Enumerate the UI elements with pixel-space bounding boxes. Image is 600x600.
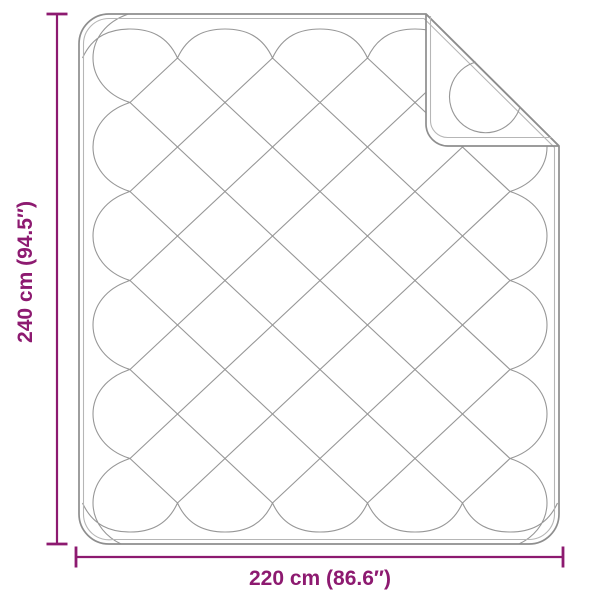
width-dimension: 220 cm (86.6″): [76, 547, 563, 591]
fold-crease-line: [426, 14, 559, 146]
folded-corner-flap: [426, 14, 559, 146]
blanket-illustration: [79, 14, 559, 548]
quilt-stitch-pattern: [83, 14, 558, 548]
product-dimension-diagram: 240 cm (94.5″) 220 cm (86.6″): [0, 0, 600, 600]
flap-edge-inner: [431, 16, 553, 138]
height-dimension-label: 240 cm (94.5″): [14, 201, 37, 343]
diagram-canvas: 240 cm (94.5″) 220 cm (86.6″): [0, 0, 600, 600]
width-dimension-label: 220 cm (86.6″): [249, 567, 391, 590]
height-dimension: 240 cm (94.5″): [14, 14, 68, 544]
